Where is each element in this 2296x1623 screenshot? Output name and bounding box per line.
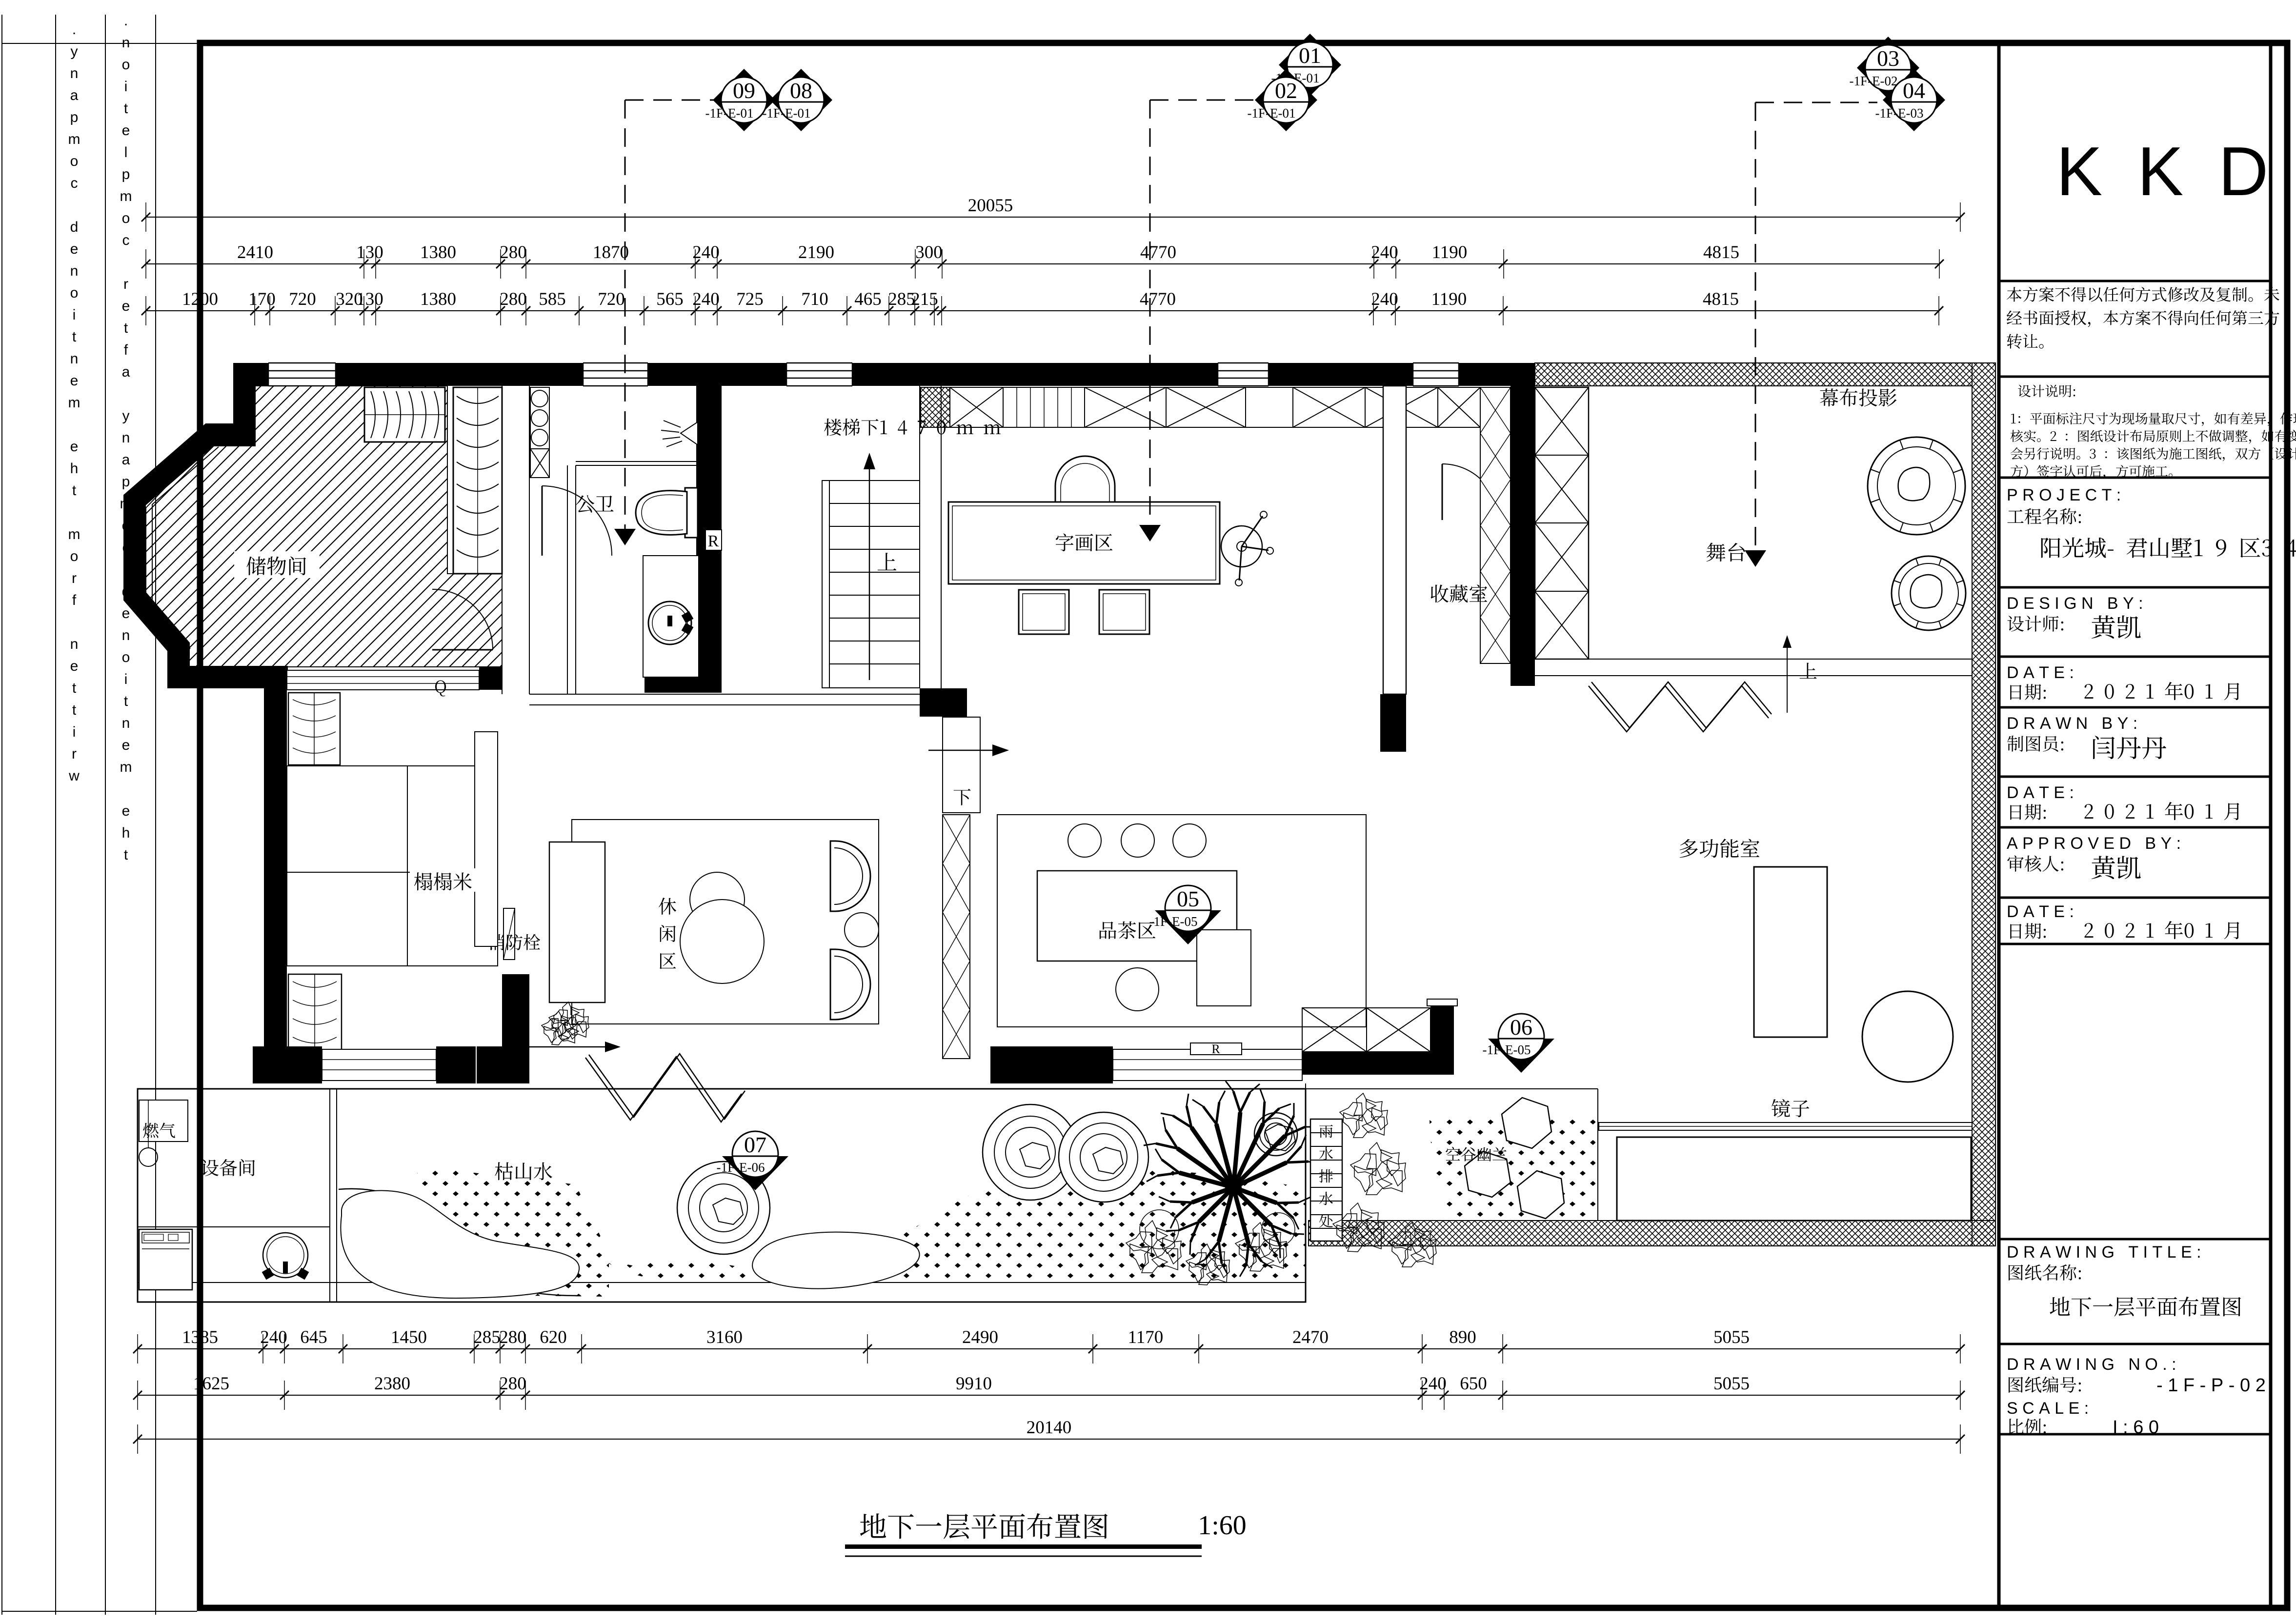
svg-text:300: 300 [915,242,943,262]
svg-text:p: p [122,474,130,490]
svg-text:09: 09 [733,78,755,103]
svg-text:2470: 2470 [1292,1327,1329,1347]
svg-text:2410: 2410 [237,242,273,262]
svg-text:R: R [1211,1042,1220,1056]
svg-text:o: o [122,649,130,665]
svg-text:e: e [122,298,130,314]
svg-text:m: m [68,526,81,542]
svg-text:240: 240 [692,289,720,309]
svg-text:t: t [124,100,128,117]
svg-text:n: n [70,65,79,81]
svg-text:e: e [122,605,130,621]
svg-text:-1F-E-03: -1F-E-03 [1875,106,1924,120]
svg-text:03: 03 [1877,46,1899,71]
svg-text:i: i [124,671,128,687]
svg-text:e: e [122,122,130,139]
svg-text:t: t [72,329,77,345]
svg-text:1450: 1450 [391,1327,427,1347]
svg-text:02: 02 [1275,78,1297,103]
svg-text:D R A W I N G T I T L E :: D R A W I N G T I T L E : [2007,1243,2201,1262]
svg-text:d: d [70,219,79,235]
svg-text:.: . [124,13,128,29]
svg-text:-1F-E-01: -1F-E-01 [1248,106,1296,120]
svg-text:c: c [71,175,78,191]
svg-text:2380: 2380 [374,1374,410,1394]
svg-text:r: r [72,570,77,586]
svg-text:240: 240 [692,242,720,262]
svg-text:e: e [70,241,79,257]
svg-text:4815: 4815 [1703,242,1739,262]
svg-text:n: n [70,351,79,367]
svg-text:2190: 2190 [798,242,834,262]
svg-text:9910: 9910 [956,1374,992,1394]
svg-text:w: w [68,768,80,784]
svg-text:t: t [72,702,77,718]
svg-text:1190: 1190 [1432,242,1468,262]
svg-text:1:60: 1:60 [1198,1510,1247,1541]
svg-text:n: n [70,263,79,279]
svg-text:1380: 1380 [420,289,456,309]
svg-text:06: 06 [1510,1015,1532,1040]
svg-text:170: 170 [248,289,276,309]
svg-text:3160: 3160 [706,1327,743,1347]
svg-text:e: e [122,737,130,753]
svg-text:t: t [72,680,77,696]
svg-text:t: t [124,847,128,863]
svg-text:m: m [120,188,132,204]
svg-text:280: 280 [499,1327,526,1347]
svg-text:4770: 4770 [1140,289,1176,309]
svg-text:- 1 F - P - 0 2: - 1 F - P - 0 2 [2156,1375,2266,1396]
svg-text:n: n [122,715,130,731]
svg-text:240: 240 [1419,1374,1447,1394]
svg-text:a: a [122,452,130,468]
svg-text:20055: 20055 [968,196,1013,216]
svg-text:D A T E :: D A T E : [2007,663,2074,682]
svg-text:05: 05 [1177,886,1199,911]
svg-text:130: 130 [356,289,383,309]
svg-text:m: m [68,395,81,411]
svg-text:n: n [122,35,130,51]
svg-text:240: 240 [1371,242,1398,262]
svg-text:t: t [124,320,128,336]
svg-text:S C A L E :: S C A L E : [2007,1399,2089,1418]
svg-text:n: n [122,627,130,643]
svg-text:-1F-E-01: -1F-E-01 [705,106,754,120]
svg-text:o: o [122,57,130,73]
svg-text:725: 725 [736,289,764,309]
svg-text:o: o [70,548,79,564]
svg-text:f: f [124,342,128,358]
svg-text:h: h [70,461,79,477]
svg-text:5055: 5055 [1713,1327,1750,1347]
svg-text:710: 710 [801,289,828,309]
svg-text:t: t [124,693,128,709]
svg-text:620: 620 [540,1327,567,1347]
svg-text:5055: 5055 [1713,1374,1750,1394]
svg-text:720: 720 [289,289,316,309]
svg-text:D E S I G N B Y :: D E S I G N B Y : [2007,594,2143,613]
svg-text:-1F-E-06: -1F-E-06 [717,1160,765,1175]
svg-text:h: h [122,825,130,841]
svg-text:1380: 1380 [420,242,456,262]
svg-text:585: 585 [539,289,566,309]
svg-text:i: i [73,724,76,740]
svg-text:e: e [70,439,79,455]
svg-text:4815: 4815 [1703,289,1739,309]
svg-text:645: 645 [300,1327,327,1347]
svg-text:l: l [124,144,128,160]
svg-text:R: R [708,532,719,550]
svg-text:-1F-E-01: -1F-E-01 [763,106,811,120]
svg-text:240: 240 [260,1327,287,1347]
svg-text:D A T E :: D A T E : [2007,902,2074,921]
svg-text:r: r [123,276,128,292]
svg-text:465: 465 [854,289,882,309]
svg-text:r: r [72,746,77,762]
svg-text:280: 280 [500,242,527,262]
svg-text:p: p [122,166,130,182]
svg-text:A P P R O V E D B Y :: A P P R O V E D B Y : [2007,834,2181,853]
svg-text:280: 280 [500,289,527,309]
svg-text:-1F-E-05: -1F-E-05 [1149,914,1198,929]
svg-text:c: c [122,232,130,248]
svg-text:130: 130 [356,242,383,262]
svg-text:D R A W N B Y :: D R A W N B Y : [2007,714,2137,733]
svg-text:y: y [71,43,78,60]
svg-text:e: e [70,373,79,389]
svg-text:t: t [72,482,77,499]
svg-text:1170: 1170 [1128,1327,1164,1347]
svg-text:o: o [122,210,130,226]
svg-text:2490: 2490 [962,1327,998,1347]
svg-text:08: 08 [790,78,812,103]
svg-text:720: 720 [598,289,625,309]
svg-text:m: m [120,759,132,775]
svg-text:e: e [122,803,130,819]
svg-text:I : 6 0: I : 6 0 [2113,1417,2159,1438]
svg-text:.: . [72,21,76,38]
svg-text:e: e [70,658,79,674]
svg-text:i: i [124,79,128,95]
svg-text:i: i [73,307,76,323]
svg-text:285: 285 [473,1327,501,1347]
svg-text:f: f [72,592,77,608]
svg-text:1625: 1625 [193,1374,229,1394]
svg-text:-1F-E-05: -1F-E-05 [1483,1042,1531,1057]
svg-text:890: 890 [1449,1327,1476,1347]
svg-text:4770: 4770 [1140,242,1176,262]
svg-text:n: n [70,636,79,652]
svg-text:P R O J E C T :: P R O J E C T : [2007,486,2121,504]
svg-text:565: 565 [656,289,684,309]
svg-text:1870: 1870 [593,242,629,262]
svg-text:a: a [70,87,79,103]
svg-text:1200: 1200 [182,289,218,309]
svg-text:240: 240 [1371,289,1398,309]
svg-text:01: 01 [1299,43,1321,68]
svg-text:m: m [68,131,81,147]
svg-text:07: 07 [744,1132,766,1157]
svg-text:o: o [70,153,79,169]
svg-text:650: 650 [1460,1374,1487,1394]
svg-text:K K D: K K D [2056,133,2276,210]
svg-text:1385: 1385 [182,1327,218,1347]
svg-text:p: p [70,109,79,125]
svg-text:1190: 1190 [1431,289,1467,309]
svg-text:D A T E :: D A T E : [2007,783,2074,802]
svg-text:20140: 20140 [1027,1418,1072,1438]
svg-text:04: 04 [1903,78,1925,103]
svg-text:y: y [122,408,130,424]
svg-text:-1F-E-02: -1F-E-02 [1850,74,1898,88]
svg-text:D R A W I N G N O . :: D R A W I N G N O . : [2007,1355,2176,1374]
svg-text:n: n [122,430,130,446]
svg-text:o: o [70,285,79,301]
svg-text:a: a [122,364,130,380]
svg-text:215: 215 [911,289,938,309]
svg-text:280: 280 [499,1374,526,1394]
